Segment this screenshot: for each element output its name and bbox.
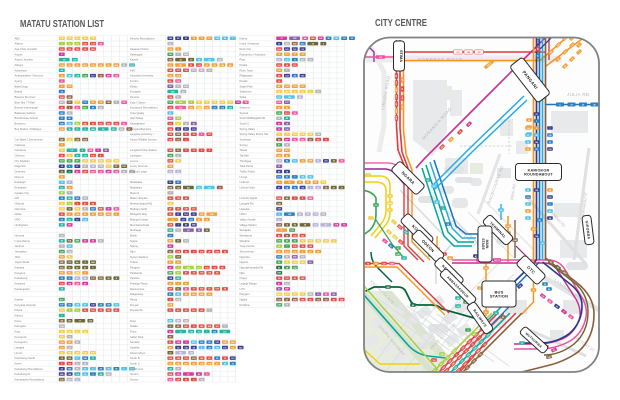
svg-text:Korogocho: Korogocho <box>15 340 29 344</box>
svg-text:Survey: Survey <box>130 377 139 381</box>
svg-text:Area Quatly: Area Quatly <box>130 111 145 115</box>
svg-text:Spring Valley Police Sta: Spring Valley Police Sta <box>240 132 269 136</box>
svg-text:ABC: ABC <box>15 36 21 40</box>
svg-text:14D: 14D <box>231 341 235 344</box>
svg-text:Unilever: Unilever <box>240 180 250 184</box>
svg-text:11A: 11A <box>60 325 64 328</box>
svg-text:Ruaka: Ruaka <box>130 324 138 328</box>
svg-text:24A: 24A <box>388 202 392 205</box>
svg-text:35A: 35A <box>107 122 111 125</box>
svg-text:Adams: Adams <box>15 42 24 46</box>
svg-text:Marurui: Marurui <box>130 191 140 195</box>
svg-text:Traffic Police: Traffic Police <box>240 170 256 174</box>
svg-text:36D: 36D <box>171 91 175 93</box>
svg-text:Spring Valley: Spring Valley <box>240 127 256 131</box>
svg-text:Kitengela: Kitengela <box>15 324 27 328</box>
svg-text:Dagoretti: Dagoretti <box>15 164 26 168</box>
svg-text:Kericho Roundabout: Kericho Roundabout <box>130 36 155 40</box>
svg-text:CITY CENTRE: CITY CENTRE <box>375 18 427 29</box>
svg-text:16B: 16B <box>91 262 95 264</box>
svg-text:Pangani: Pangani <box>130 266 140 270</box>
svg-text:36D: 36D <box>168 321 172 323</box>
svg-text:17D: 17D <box>314 214 318 216</box>
svg-text:41C: 41C <box>60 298 64 301</box>
svg-text:Kenyatta University: Kenyatta University <box>130 74 154 78</box>
svg-text:Car Wash / Zimmerman: Car Wash / Zimmerman <box>15 138 44 142</box>
svg-text:South B/Mbagathi Rd: South B/Mbagathi Rd <box>240 116 266 120</box>
svg-text:Eastleigh: Eastleigh <box>15 180 27 184</box>
svg-text:33C: 33C <box>223 347 227 349</box>
svg-text:Ngobit: Ngobit <box>240 298 248 302</box>
svg-text:Baba Dogo: Baba Dogo <box>15 84 29 88</box>
svg-text:Komarock: Komarock <box>15 335 28 339</box>
svg-text:STIMA: STIMA <box>399 50 404 62</box>
svg-text:Umoja: Umoja <box>240 175 248 179</box>
svg-text:18D: 18D <box>223 342 227 344</box>
svg-text:40B: 40B <box>187 266 191 269</box>
svg-text:Kenyatta Hospital: Kenyatta Hospital <box>15 303 36 307</box>
svg-text:Ruaka: Ruaka <box>240 63 248 67</box>
svg-text:Hurlingham: Hurlingham <box>15 223 30 227</box>
svg-text:Westlands: Westlands <box>240 234 253 238</box>
svg-text:Imara Daima: Imara Daima <box>15 239 31 243</box>
svg-text:Muthaiga: Muthaiga <box>130 228 142 232</box>
svg-text:Bakanani Gahera: Bakanani Gahera <box>15 111 36 115</box>
svg-text:21A: 21A <box>168 160 172 163</box>
svg-text:Blue Sky / T-Mall: Blue Sky / T-Mall <box>15 100 36 104</box>
svg-text:Bomas Interchange: Bomas Interchange <box>15 106 39 110</box>
svg-text:Sant: Sant <box>240 100 246 104</box>
svg-text:Njiru: Njiru <box>240 271 246 275</box>
svg-text:Prestige Plaza: Prestige Plaza <box>130 282 148 286</box>
svg-text:Rongai: Rongai <box>130 303 139 307</box>
svg-text:Kumbu: Kumbu <box>130 79 139 83</box>
svg-text:Ruai: Ruai <box>130 319 136 323</box>
svg-text:Jogoo Road: Jogoo Road <box>15 260 30 264</box>
svg-text:Komarock Roundabout: Komarock Roundabout <box>130 106 158 110</box>
svg-text:14C: 14C <box>395 81 398 85</box>
svg-text:Mathare North: Mathare North <box>130 207 148 211</box>
svg-text:South C: South C <box>240 122 250 126</box>
svg-text:32C: 32C <box>168 241 172 243</box>
svg-text:Utawala: Utawala <box>240 207 250 211</box>
svg-text:Ruiru: Ruiru <box>130 329 137 333</box>
svg-text:Buruburu: Buruburu <box>15 122 27 126</box>
svg-text:18D: 18D <box>176 363 180 365</box>
svg-text:Valley Arcade: Valley Arcade <box>240 218 257 222</box>
svg-text:Total Petrol: Total Petrol <box>240 164 254 168</box>
svg-text:30B: 30B <box>208 326 212 328</box>
svg-text:38D: 38D <box>309 198 313 200</box>
svg-text:42C: 42C <box>75 122 79 125</box>
svg-text:Rudisha: Rudisha <box>240 303 250 307</box>
svg-text:Langata Cemetery /: Langata Cemetery / <box>130 132 154 136</box>
svg-text:Kariobangi N: Kariobangi N <box>15 372 31 376</box>
svg-text:Taj Mall: Taj Mall <box>240 154 250 158</box>
svg-text:24A: 24A <box>277 197 281 200</box>
svg-text:Kenya Wildlife Service: Kenya Wildlife Service <box>130 138 157 142</box>
svg-text:23A: 23A <box>91 48 95 51</box>
svg-text:Lavington: Lavington <box>130 154 142 158</box>
svg-text:Saika: Saika <box>240 95 247 99</box>
svg-text:Imani / Kasarani: Imani / Kasarani <box>240 42 260 46</box>
svg-text:MATATU STATION LIST: MATATU STATION LIST <box>20 19 104 30</box>
svg-text:Kabete: Kabete <box>15 298 24 302</box>
svg-text:Kangemi: Kangemi <box>15 271 26 275</box>
svg-text:4W: 4W <box>387 286 390 289</box>
svg-text:17D: 17D <box>200 273 204 275</box>
svg-text:17D: 17D <box>168 102 172 104</box>
svg-text:Kibera: Kibera <box>15 308 23 312</box>
svg-text:Ngong/Kanyada Rd: Ngong/Kanyada Rd <box>240 266 264 270</box>
svg-text:High Ridge: High Ridge <box>130 116 144 120</box>
svg-text:Zimmerman: Zimmerman <box>240 250 255 254</box>
svg-text:33A: 33A <box>176 75 180 78</box>
svg-text:Kinoran: Kinoran <box>130 95 140 99</box>
svg-text:11A: 11A <box>184 213 188 216</box>
svg-text:43B: 43B <box>168 272 172 275</box>
svg-text:Limuru: Limuru <box>15 351 24 355</box>
svg-text:Mombasa Road: Mombasa Road <box>130 223 149 227</box>
svg-text:12A: 12A <box>535 235 539 238</box>
svg-text:Lucky Summer: Lucky Summer <box>130 164 148 168</box>
svg-text:Parklands: Parklands <box>130 271 143 275</box>
svg-text:Langata Rd: Langata Rd <box>240 202 254 206</box>
svg-text:City Stadium: City Stadium <box>15 159 31 163</box>
svg-text:Mwiki: Mwiki <box>130 234 137 238</box>
svg-text:13D: 13D <box>60 257 64 259</box>
svg-text:35A: 35A <box>277 293 281 296</box>
svg-text:Riruta: Riruta <box>130 298 138 302</box>
svg-text:KMI: KMI <box>130 68 135 72</box>
svg-text:Kikuyu: Kikuyu <box>15 314 24 318</box>
svg-text:Tassia: Tassia <box>240 148 248 152</box>
svg-text:11B: 11B <box>200 363 204 365</box>
svg-text:KCA: KCA <box>130 63 136 67</box>
svg-text:Koja: Koja <box>15 329 21 333</box>
svg-text:25A: 25A <box>285 43 289 46</box>
svg-text:Sunton: Sunton <box>130 372 139 376</box>
svg-text:Ridgeways: Ridgeways <box>130 292 144 296</box>
svg-text:Limuru: Limuru <box>130 159 139 163</box>
svg-text:30A: 30A <box>176 298 180 301</box>
svg-text:12B: 12B <box>390 263 394 265</box>
svg-text:11B: 11B <box>68 251 72 253</box>
svg-text:Huruma: Huruma <box>15 234 25 238</box>
svg-text:37A: 37A <box>176 250 180 253</box>
svg-text:37C: 37C <box>208 134 212 136</box>
svg-text:Shauri Moyo: Shauri Moyo <box>130 351 146 355</box>
svg-text:Langata: Langata <box>15 345 25 349</box>
svg-text:40B: 40B <box>277 272 281 275</box>
svg-text:Runda: Runda <box>240 79 248 83</box>
svg-text:Allsops: Allsops <box>15 63 24 67</box>
svg-text:Mater Hospital: Mater Hospital <box>130 196 148 200</box>
svg-text:Jamhuri: Jamhuri <box>15 244 25 248</box>
svg-text:34D: 34D <box>107 213 111 216</box>
svg-text:35C: 35C <box>83 107 87 109</box>
svg-text:Kamasasho Roundabout: Kamasasho Roundabout <box>15 377 45 381</box>
svg-text:10D: 10D <box>293 38 297 40</box>
svg-text:Ruai: Ruai <box>240 58 246 62</box>
svg-text:Racecourse: Racecourse <box>130 287 145 291</box>
svg-text:Kibera: Kibera <box>240 36 248 40</box>
svg-text:Madaraka: Madaraka <box>130 180 142 184</box>
svg-text:Odeon: Odeon <box>130 260 139 264</box>
svg-text:Kasugbrand: Kasugbrand <box>130 122 145 126</box>
svg-text:Drive-In: Drive-In <box>15 175 25 179</box>
svg-text:ROUNDABOUT: ROUNDABOUT <box>524 173 553 177</box>
svg-text:Unguja Range: Unguja Range <box>240 282 258 286</box>
svg-text:37A: 37A <box>301 133 305 136</box>
svg-text:Ayany: Ayany <box>15 79 23 83</box>
svg-text:Aga Khan Hospital: Aga Khan Hospital <box>15 47 38 51</box>
svg-text:JKIA: JKIA <box>15 255 21 259</box>
svg-text:Makadara: Makadara <box>130 186 142 190</box>
svg-text:Meteorological HQ: Meteorological HQ <box>130 202 152 206</box>
svg-text:South B: South B <box>130 356 140 360</box>
svg-text:STATION: STATION <box>490 294 508 299</box>
svg-text:30A: 30A <box>210 213 214 216</box>
svg-text:Strathmore: Strathmore <box>130 367 144 371</box>
svg-text:Pangani: Pangani <box>240 292 250 296</box>
svg-text:17A: 17A <box>335 224 339 227</box>
svg-text:21B: 21B <box>60 129 64 131</box>
svg-text:Ngumba: Ngumba <box>240 255 251 259</box>
svg-text:19C: 19C <box>60 273 64 275</box>
svg-text:Sunbeam: Sunbeam <box>240 138 252 142</box>
svg-text:Kasarani: Kasarani <box>15 282 26 286</box>
svg-text:12C: 12C <box>112 129 116 131</box>
svg-text:Globe: Globe <box>15 212 23 216</box>
svg-text:Safari Park: Safari Park <box>240 84 254 88</box>
svg-text:23C: 23C <box>536 40 538 44</box>
svg-text:19D: 19D <box>176 278 180 280</box>
svg-text:22B: 22B <box>60 97 64 99</box>
svg-text:40B: 40B <box>395 116 398 120</box>
svg-text:17C: 17C <box>68 262 72 264</box>
svg-text:Uchumi Sarit: Uchumi Sarit <box>240 186 256 190</box>
svg-text:Jerusalem: Jerusalem <box>15 250 28 254</box>
svg-text:Safari Park: Safari Park <box>130 335 144 339</box>
svg-text:Bahati: Bahati <box>15 90 23 94</box>
svg-text:30A: 30A <box>83 138 87 141</box>
svg-text:31A: 31A <box>277 48 281 51</box>
svg-text:Chiromo: Chiromo <box>15 154 26 158</box>
svg-text:Roysambu: Roysambu <box>130 308 143 312</box>
svg-text:Kibeju: Kibeju <box>130 84 138 88</box>
svg-text:Airport Junction: Airport Junction <box>15 58 34 62</box>
svg-text:12D: 12D <box>122 166 126 168</box>
svg-text:41C: 41C <box>83 64 87 67</box>
svg-text:Pipeline: Pipeline <box>130 276 140 280</box>
svg-text:14A: 14A <box>184 53 188 56</box>
svg-text:Arboretum: Arboretum <box>15 68 28 72</box>
svg-text:41B: 41B <box>293 298 297 301</box>
svg-text:17C: 17C <box>75 209 79 211</box>
svg-text:Nyayo Stadium: Nyayo Stadium <box>130 255 149 259</box>
svg-text:Kariobangi South: Kariobangi South <box>15 356 36 360</box>
svg-text:Carnivore: Carnivore <box>15 148 27 152</box>
svg-text:Githurai: Githurai <box>15 202 25 206</box>
svg-text:Linksoft Signal: Linksoft Signal <box>240 196 258 200</box>
svg-text:Witeithie: Witeithie <box>240 239 251 243</box>
svg-text:Embakasi: Embakasi <box>15 186 27 190</box>
svg-text:Mlango Kubwa: Mlango Kubwa <box>130 218 148 222</box>
svg-text:Koja / Odeon: Koja / Odeon <box>130 100 146 104</box>
svg-text:Rock City: Rock City <box>240 47 252 51</box>
svg-text:Roysambu / Kasarani: Roysambu / Kasarani <box>240 52 266 56</box>
svg-text:25A: 25A <box>168 373 172 376</box>
svg-text:27C: 27C <box>68 86 72 88</box>
svg-text:31D: 31D <box>215 251 219 253</box>
svg-text:Langata Barracks: Langata Barracks <box>130 127 152 131</box>
svg-text:Langata Police Station: Langata Police Station <box>130 148 157 152</box>
svg-text:Mbagathi Way: Mbagathi Way <box>130 212 148 216</box>
svg-text:13F/7F: 13F/7F <box>494 260 501 262</box>
svg-text:Cabanas: Cabanas <box>15 143 26 147</box>
svg-text:Kariobangi Roundabout: Kariobangi Roundabout <box>15 367 43 371</box>
svg-text:31C: 31C <box>192 342 196 344</box>
svg-text:23D: 23D <box>309 294 313 296</box>
svg-text:Maasai Lodge: Maasai Lodge <box>130 170 147 174</box>
svg-text:Njiru: Njiru <box>130 250 136 254</box>
svg-text:Banana Terminus: Banana Terminus <box>15 95 37 99</box>
svg-text:Kasarani Police: Kasarani Police <box>130 47 149 51</box>
svg-text:Ambassadeur / Kencom: Ambassadeur / Kencom <box>15 74 44 78</box>
svg-text:Airport: Airport <box>15 52 23 56</box>
svg-text:Donholm: Donholm <box>15 170 27 174</box>
svg-text:16C: 16C <box>277 60 281 62</box>
svg-text:Ngumo: Ngumo <box>240 260 249 264</box>
svg-text:Santack: Santack <box>130 340 140 344</box>
svg-text:36A: 36A <box>68 240 72 243</box>
svg-text:Serena: Serena <box>240 111 249 115</box>
svg-text:36B: 36B <box>91 129 95 131</box>
svg-text:Kayole: Kayole <box>130 58 139 62</box>
svg-text:UTC: UTC <box>240 287 246 291</box>
svg-text:Uthiru: Uthiru <box>240 212 248 216</box>
svg-text:Karengata: Karengata <box>130 52 143 56</box>
svg-text:South C: South C <box>130 361 140 365</box>
svg-text:GPO: GPO <box>15 218 21 222</box>
svg-text:Westgate: Westgate <box>240 228 252 232</box>
svg-text:17B: 17B <box>99 166 103 168</box>
svg-text:Village Market: Village Market <box>240 223 257 227</box>
svg-text:GM: GM <box>15 196 20 200</box>
svg-text:Kahawa: Kahawa <box>15 266 25 270</box>
svg-text:16A: 16A <box>114 64 118 67</box>
svg-text:36D: 36D <box>311 38 315 40</box>
svg-text:Garden City: Garden City <box>15 191 30 195</box>
svg-text:43D: 43D <box>60 101 64 104</box>
svg-text:31C: 31C <box>60 267 64 269</box>
svg-text:20B: 20B <box>176 134 180 136</box>
svg-text:Kariobangi: Kariobangi <box>15 276 28 280</box>
svg-text:Yaya Centre: Yaya Centre <box>240 244 255 248</box>
svg-text:Safaricom: Safaricom <box>240 90 253 94</box>
svg-text:Bus Station / Railways: Bus Station / Railways <box>15 127 42 131</box>
svg-text:Brookhouse School: Brookhouse School <box>15 116 39 120</box>
svg-text:Ruiru Town: Ruiru Town <box>240 68 254 72</box>
svg-text:STAGE: STAGE <box>481 238 485 250</box>
svg-text:19A: 19A <box>277 160 281 163</box>
svg-text:Ngara: Ngara <box>130 239 138 243</box>
svg-text:Kinoo: Kinoo <box>15 319 22 323</box>
svg-text:31C: 31C <box>395 95 397 99</box>
svg-text:Nyayo: Nyayo <box>240 276 248 280</box>
svg-text:Ridgeways: Ridgeways <box>240 74 254 78</box>
svg-text:33A: 33A <box>200 293 204 296</box>
svg-text:Komgela: Komgela <box>130 90 141 94</box>
svg-text:Survey: Survey <box>240 143 249 147</box>
svg-text:Thindigua: Thindigua <box>240 159 252 163</box>
svg-text:43C: 43C <box>301 43 305 46</box>
svg-text:Kawangware: Kawangware <box>15 287 31 291</box>
svg-text:JULIA RD: JULIA RD <box>567 92 589 97</box>
svg-text:36C: 36C <box>301 60 305 62</box>
svg-text:Karen: Karen <box>15 361 23 365</box>
svg-text:Seasons: Seasons <box>240 106 251 110</box>
svg-text:Ngong: Ngong <box>130 244 138 248</box>
svg-text:Satellite: Satellite <box>130 345 140 349</box>
svg-text:Gikomba: Gikomba <box>15 207 26 211</box>
